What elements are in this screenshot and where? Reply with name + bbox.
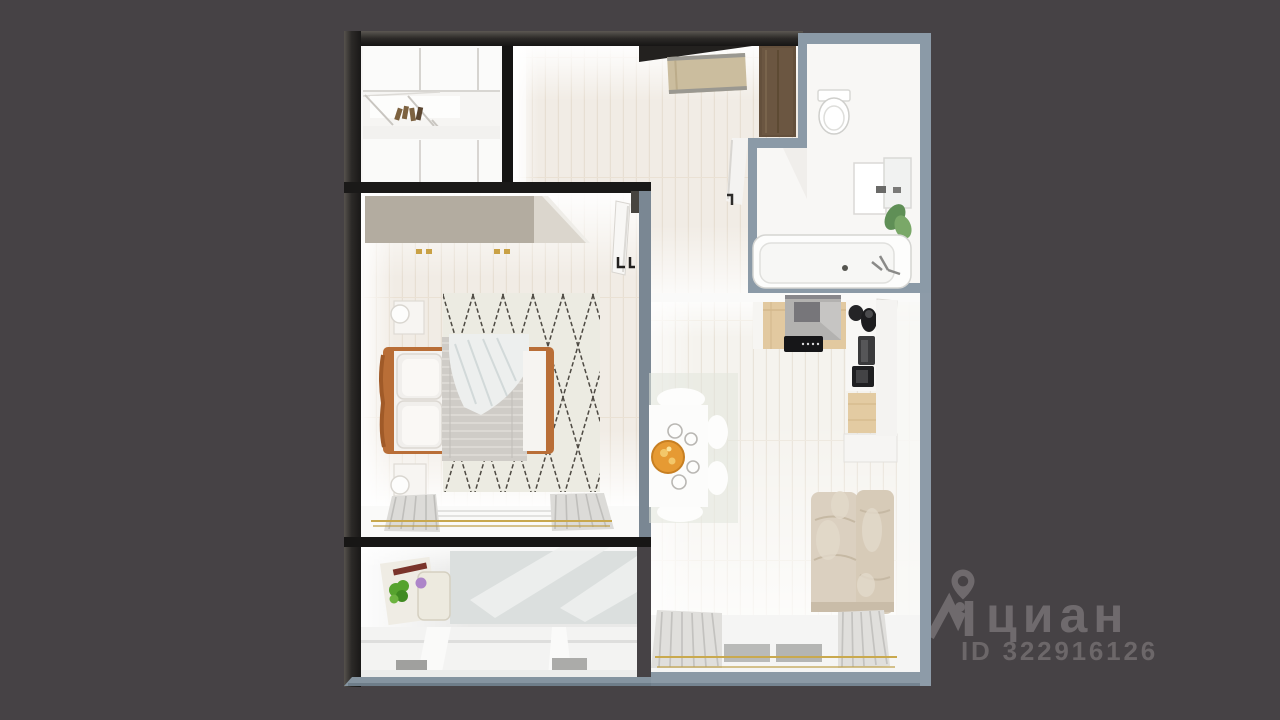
svg-text:циан: циан bbox=[986, 587, 1129, 643]
svg-text:ID 322916126: ID 322916126 bbox=[961, 636, 1158, 666]
